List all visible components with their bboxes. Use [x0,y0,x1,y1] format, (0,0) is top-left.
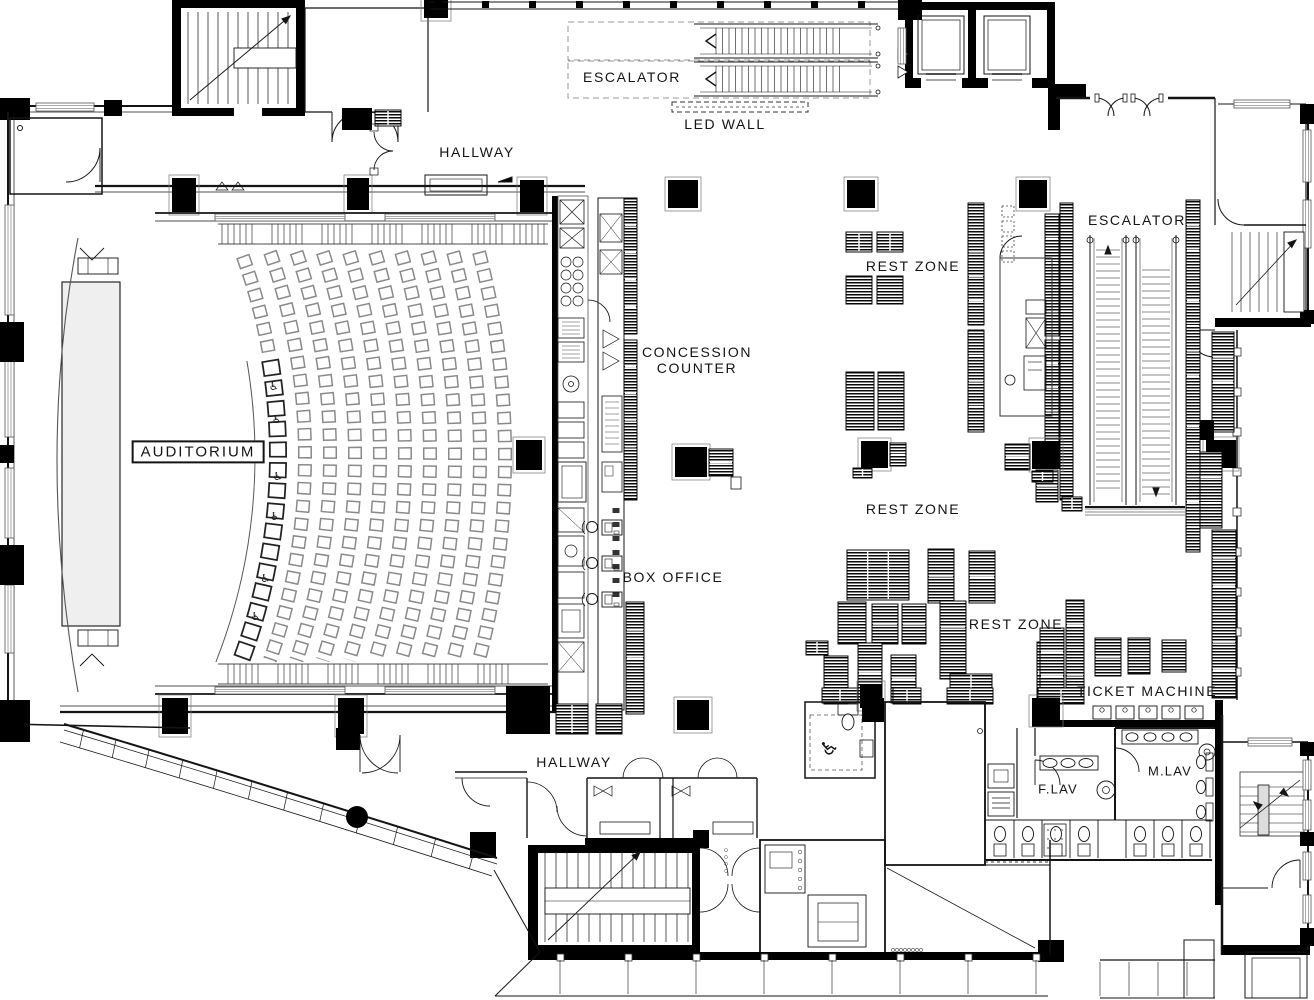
label-m-lav: M.LAV [1148,765,1192,780]
label-escalator-right: ESCALATOR [1088,212,1186,228]
label-hallway-bottom: HALLWAY [536,754,612,770]
label-rest-zone-3: REST ZONE [969,616,1063,632]
svg-text:♿: ♿ [272,413,282,426]
label-f-lav: F.LAV [1038,783,1078,798]
svg-text:♿: ♿ [260,572,270,585]
label-led-wall: LED WALL [684,116,766,132]
label-auditorium: AUDITORIUM [132,440,265,463]
svg-text:♿: ♿ [273,470,283,483]
label-rest-zone-1: REST ZONE [866,258,960,274]
label-rest-zone-2: REST ZONE [866,501,960,517]
svg-text:♿: ♿ [815,732,843,762]
svg-text:♿: ♿ [270,510,280,523]
floor-plan: ♿♿♿♿♿♿♿ ESCALATOR LED WALL HALLWAY ESCAL… [0,0,1314,1000]
svg-text:♿: ♿ [269,380,279,393]
label-hallway-top: HALLWAY [439,144,515,160]
svg-text:♿: ♿ [251,610,261,623]
label-concession-counter: CONCESSION COUNTER [642,344,752,376]
label-escalator-top: ESCALATOR [583,69,681,85]
floor-plan-canvas: ♿♿♿♿♿♿♿ [0,0,1314,1000]
label-ticket-machine: TICKET MACHINE [1077,683,1217,699]
label-box-office: BOX OFFICE [623,569,724,585]
